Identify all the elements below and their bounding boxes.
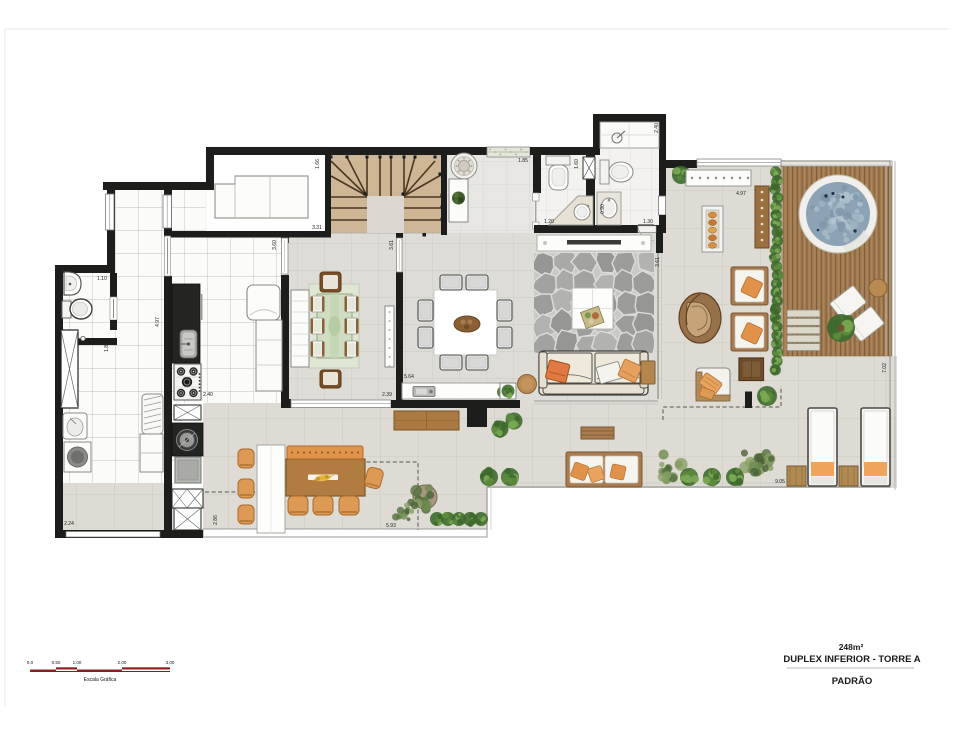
svg-text:2.24: 2.24 <box>64 521 74 527</box>
svg-text:3.60: 3.60 <box>272 240 278 250</box>
svg-text:7.02: 7.02 <box>882 363 888 373</box>
svg-text:1.85: 1.85 <box>518 158 528 164</box>
svg-text:2.00: 2.00 <box>118 660 127 665</box>
svg-text:3.61: 3.61 <box>655 257 661 267</box>
svg-text:1.10: 1.10 <box>97 276 107 282</box>
svg-text:5.93: 5.93 <box>386 523 396 529</box>
svg-text:1.66: 1.66 <box>315 159 321 169</box>
svg-text:3.31: 3.31 <box>312 225 322 231</box>
svg-text:1.00: 1.00 <box>73 660 82 665</box>
svg-text:1.30: 1.30 <box>643 219 653 225</box>
svg-text:PADRÃO: PADRÃO <box>832 676 872 687</box>
svg-text:0.50: 0.50 <box>52 660 61 665</box>
svg-text:4.97: 4.97 <box>736 191 746 197</box>
svg-text:1.80: 1.80 <box>104 342 110 352</box>
svg-text:2.39: 2.39 <box>382 392 392 398</box>
svg-text:248m²: 248m² <box>839 642 864 652</box>
svg-text:2.40: 2.40 <box>654 123 660 133</box>
svg-text:2.40: 2.40 <box>203 392 213 398</box>
svg-text:0.0: 0.0 <box>27 660 34 665</box>
svg-text:3.00: 3.00 <box>166 660 175 665</box>
svg-text:DUPLEX INFERIOR - TORRE A: DUPLEX INFERIOR - TORRE A <box>783 654 920 665</box>
svg-text:Escala Gráfica: Escala Gráfica <box>84 677 117 683</box>
svg-text:2.86: 2.86 <box>213 515 219 525</box>
svg-text:4.97: 4.97 <box>155 317 161 327</box>
svg-text:9.05: 9.05 <box>775 479 785 485</box>
svg-text:3.61: 3.61 <box>389 240 395 250</box>
svg-text:0.90: 0.90 <box>600 204 606 214</box>
svg-text:5.64: 5.64 <box>404 374 414 380</box>
svg-text:1.20: 1.20 <box>544 219 554 225</box>
svg-text:1.60: 1.60 <box>574 159 580 169</box>
